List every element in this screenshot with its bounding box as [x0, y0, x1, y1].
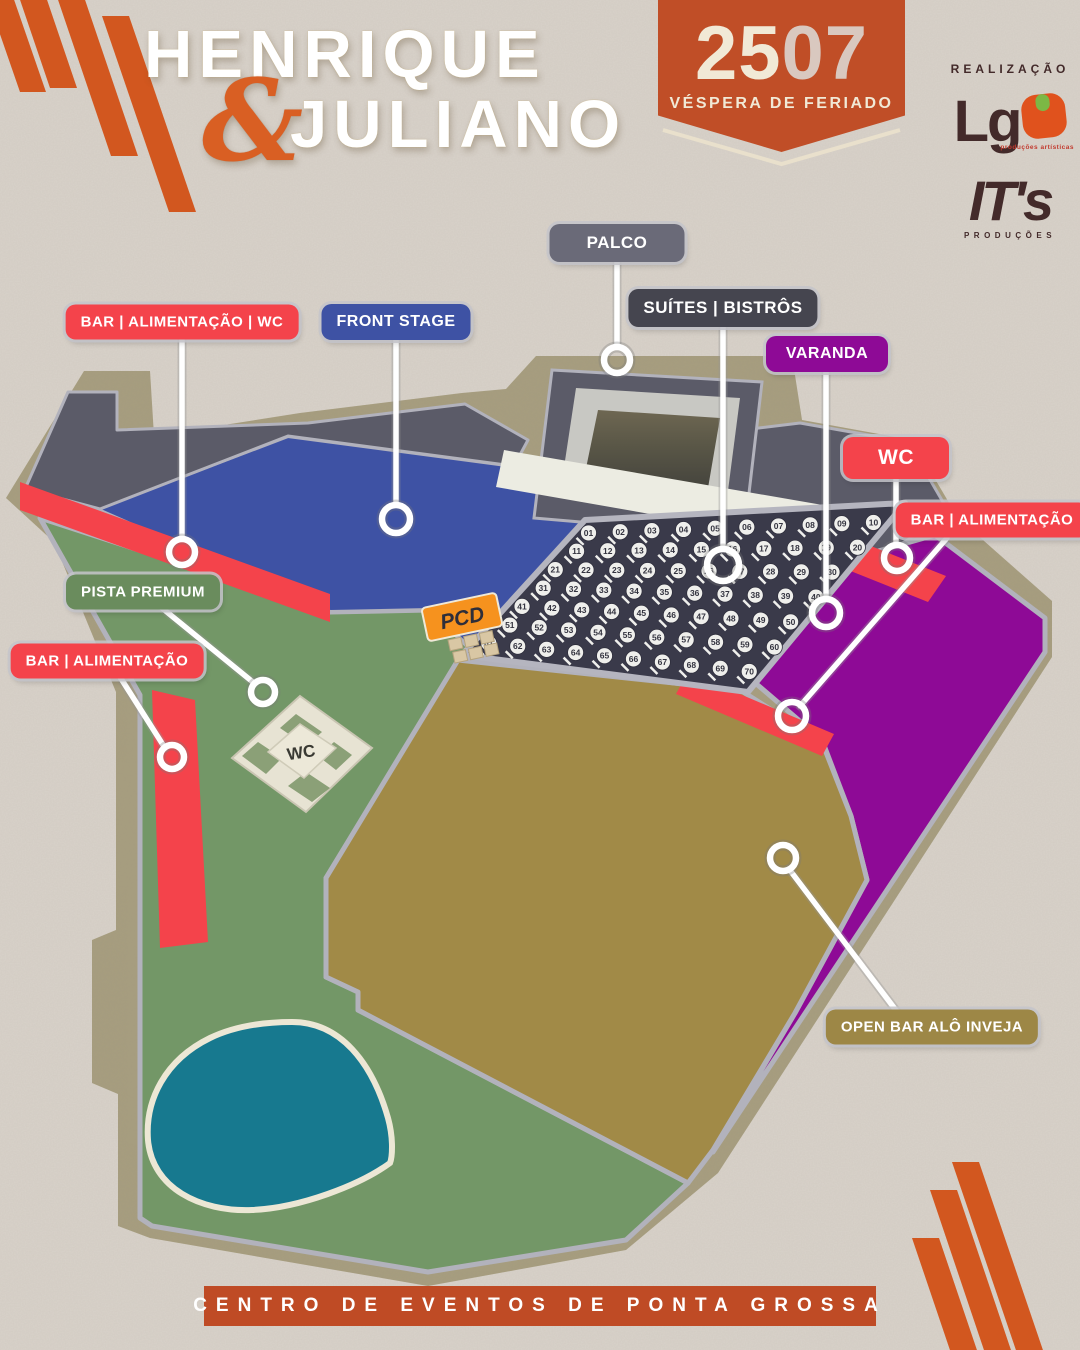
svg-text:39: 39 [781, 591, 791, 601]
svg-text:28: 28 [766, 567, 776, 577]
legend-wc: WC [843, 437, 949, 479]
svg-text:32: 32 [569, 584, 579, 594]
svg-text:43: 43 [577, 605, 587, 615]
svg-text:67: 67 [658, 657, 668, 667]
date-day: 25 [695, 11, 782, 96]
svg-text:52: 52 [534, 623, 544, 633]
lg-logo-text: Lg [954, 96, 1021, 148]
legend-suites-bistros: SUÍTES | BISTRÔS [628, 289, 817, 327]
svg-text:35: 35 [660, 587, 670, 597]
svg-text:21: 21 [551, 565, 561, 575]
svg-text:37: 37 [720, 589, 730, 599]
realization-title: REALIZAÇÃO [942, 62, 1078, 76]
event-map-poster: WC 0102030405060708091011121314151617181… [0, 0, 1080, 1350]
svg-text:38: 38 [751, 590, 761, 600]
svg-text:42: 42 [547, 603, 557, 613]
ampersand: & [202, 66, 303, 178]
lg-logo-o-icon [1020, 92, 1068, 140]
svg-text:56: 56 [652, 632, 662, 642]
svg-text:15: 15 [697, 544, 707, 554]
svg-text:55: 55 [623, 630, 633, 640]
svg-text:48: 48 [726, 613, 736, 623]
svg-text:49: 49 [756, 615, 766, 625]
legend-varanda: VARANDA [766, 336, 888, 372]
legend-front-stage: FRONT STAGE [322, 304, 471, 340]
svg-text:46: 46 [667, 610, 677, 620]
svg-text:18: 18 [790, 543, 800, 553]
svg-text:53: 53 [564, 625, 574, 635]
svg-text:17: 17 [759, 544, 769, 554]
date-caption: VÉSPERA DE FERIADO [658, 95, 905, 113]
svg-text:14: 14 [665, 545, 675, 555]
svg-text:07: 07 [774, 521, 784, 531]
legend-bar-alimentacao-wc: BAR | ALIMENTAÇÃO | WC [66, 305, 299, 340]
svg-text:24: 24 [643, 565, 653, 575]
svg-text:25: 25 [674, 566, 684, 576]
svg-text:59: 59 [740, 640, 750, 650]
legend-bar-alimentacao-direita: BAR | ALIMENTAÇÃO [896, 503, 1080, 538]
svg-text:04: 04 [679, 524, 689, 534]
svg-text:13: 13 [634, 545, 644, 555]
venue-banner: CENTRO DE EVENTOS DE PONTA GROSSA [204, 1286, 876, 1326]
date-numbers: 2507 [658, 0, 905, 92]
svg-text:09: 09 [837, 519, 847, 529]
svg-text:51: 51 [505, 620, 515, 630]
svg-text:20: 20 [853, 542, 863, 552]
svg-text:23: 23 [612, 565, 622, 575]
its-producoes-logo: IT's [942, 173, 1078, 229]
svg-text:22: 22 [581, 565, 591, 575]
svg-text:54: 54 [593, 627, 603, 637]
svg-text:31: 31 [538, 583, 548, 593]
legend-bar-alimentacao-esquerda: BAR | ALIMENTAÇÃO [11, 644, 204, 679]
svg-text:63: 63 [542, 644, 552, 654]
svg-text:60: 60 [770, 642, 780, 652]
svg-text:50: 50 [786, 617, 796, 627]
artist-logo: HENRIQUE & JULIANO [118, 20, 638, 200]
svg-text:12: 12 [603, 546, 613, 556]
svg-text:33: 33 [599, 585, 609, 595]
svg-text:69: 69 [716, 663, 726, 673]
svg-text:29: 29 [797, 567, 807, 577]
legend-palco: PALCO [550, 224, 685, 262]
svg-text:08: 08 [805, 520, 815, 530]
legend-pista-premium: PISTA PREMIUM [66, 575, 220, 610]
svg-text:62: 62 [513, 641, 523, 651]
artist-name-line2: JULIANO [290, 86, 626, 163]
svg-text:64: 64 [571, 648, 581, 658]
svg-text:65: 65 [600, 651, 610, 661]
svg-text:44: 44 [607, 607, 617, 617]
svg-text:45: 45 [637, 608, 647, 618]
svg-text:66: 66 [629, 654, 639, 664]
svg-text:70: 70 [744, 667, 754, 677]
svg-text:68: 68 [687, 660, 697, 670]
realization-block: REALIZAÇÃO Lg produções artísticas IT's … [942, 62, 1078, 240]
svg-text:58: 58 [711, 637, 721, 647]
date-month: 07 [782, 11, 869, 96]
svg-text:02: 02 [615, 527, 625, 537]
svg-text:34: 34 [629, 586, 639, 596]
svg-text:47: 47 [696, 612, 706, 622]
svg-text:10: 10 [869, 517, 879, 527]
svg-text:06: 06 [742, 522, 752, 532]
svg-text:01: 01 [584, 528, 594, 538]
svg-text:57: 57 [681, 635, 691, 645]
legend-open-bar-alo-inveja: OPEN BAR ALÔ INVEJA [826, 1010, 1038, 1045]
svg-text:03: 03 [647, 526, 657, 536]
svg-text:36: 36 [690, 588, 700, 598]
lg-producoes-logo: Lg [942, 96, 1078, 148]
its-logo-subtitle: PRODUÇÕES [942, 231, 1078, 240]
svg-text:11: 11 [572, 546, 581, 556]
svg-text:41: 41 [517, 601, 527, 611]
